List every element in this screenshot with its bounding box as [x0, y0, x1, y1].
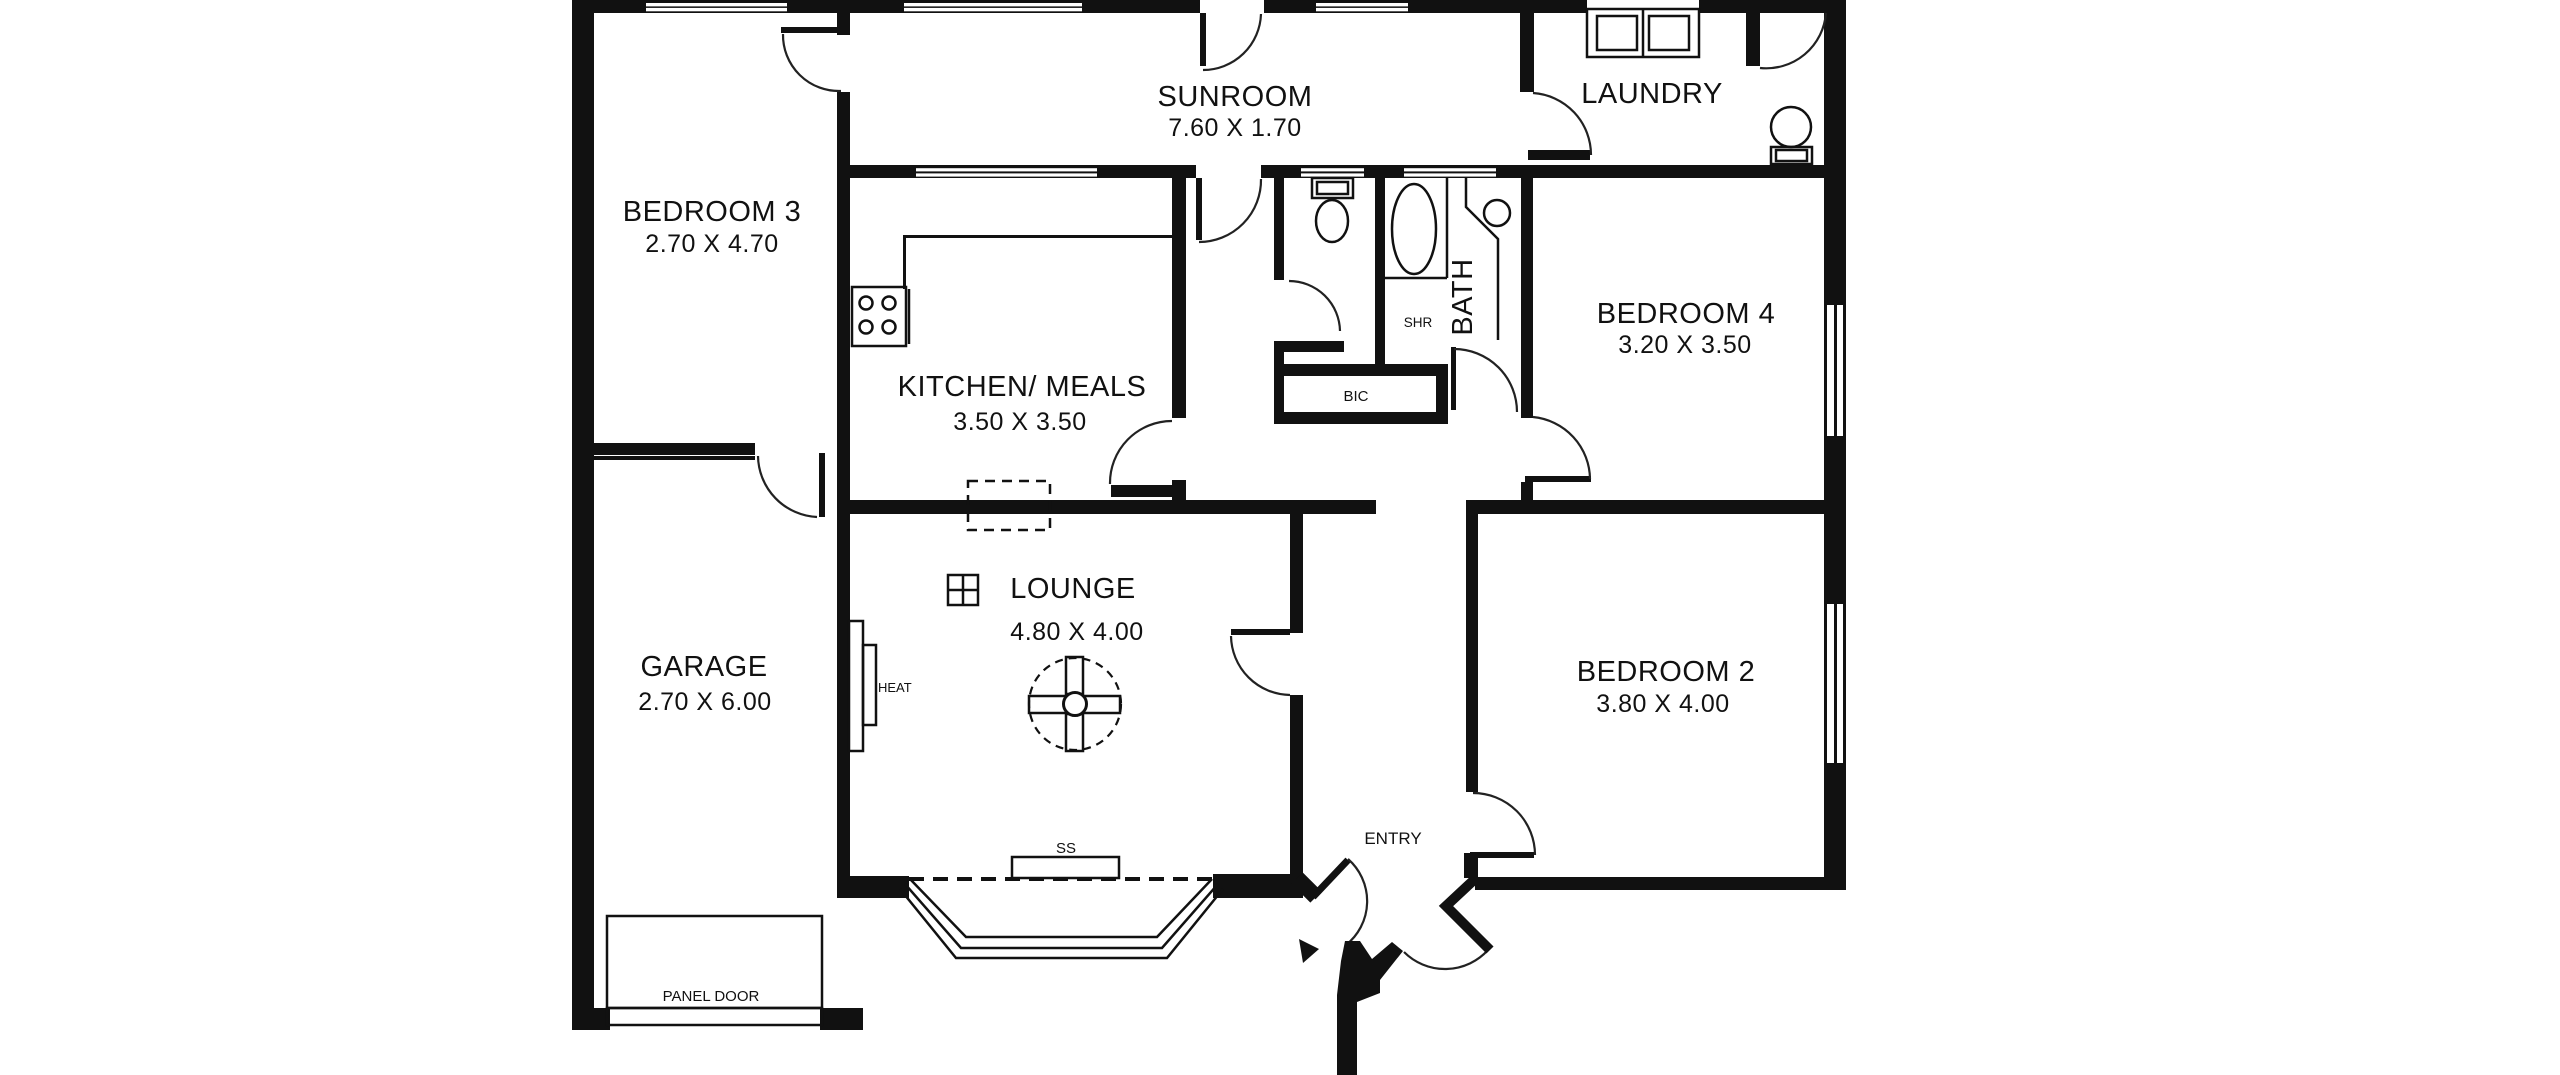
svg-text:3.20 X 3.50: 3.20 X 3.50 [1618, 331, 1751, 359]
svg-text:7.60 X 1.70: 7.60 X 1.70 [1168, 114, 1301, 142]
svg-text:BIC: BIC [1343, 388, 1368, 405]
svg-text:ENTRY: ENTRY [1364, 829, 1421, 848]
svg-text:SS: SS [1056, 840, 1076, 857]
svg-text:BATH: BATH [1447, 258, 1479, 335]
svg-text:HEAT: HEAT [878, 680, 912, 695]
svg-text:2.70 X 4.70: 2.70 X 4.70 [645, 230, 778, 258]
svg-text:SHR: SHR [1404, 315, 1433, 330]
svg-text:BEDROOM 2: BEDROOM 2 [1577, 656, 1756, 688]
svg-text:LAUNDRY: LAUNDRY [1581, 78, 1723, 110]
svg-text:3.80 X 4.00: 3.80 X 4.00 [1596, 690, 1729, 718]
svg-text:3.50 X 3.50: 3.50 X 3.50 [953, 408, 1086, 436]
svg-text:LOUNGE: LOUNGE [1010, 573, 1135, 605]
svg-text:BEDROOM 4: BEDROOM 4 [1597, 298, 1776, 330]
svg-text:BEDROOM 3: BEDROOM 3 [623, 196, 802, 228]
svg-text:KITCHEN/ MEALS: KITCHEN/ MEALS [898, 371, 1147, 403]
svg-text:SUNROOM: SUNROOM [1158, 81, 1313, 113]
svg-text:2.70 X 6.00: 2.70 X 6.00 [638, 688, 771, 716]
svg-text:PANEL DOOR: PANEL DOOR [663, 988, 760, 1005]
svg-text:4.80 X 4.00: 4.80 X 4.00 [1010, 618, 1143, 646]
svg-text:GARAGE: GARAGE [640, 651, 767, 683]
